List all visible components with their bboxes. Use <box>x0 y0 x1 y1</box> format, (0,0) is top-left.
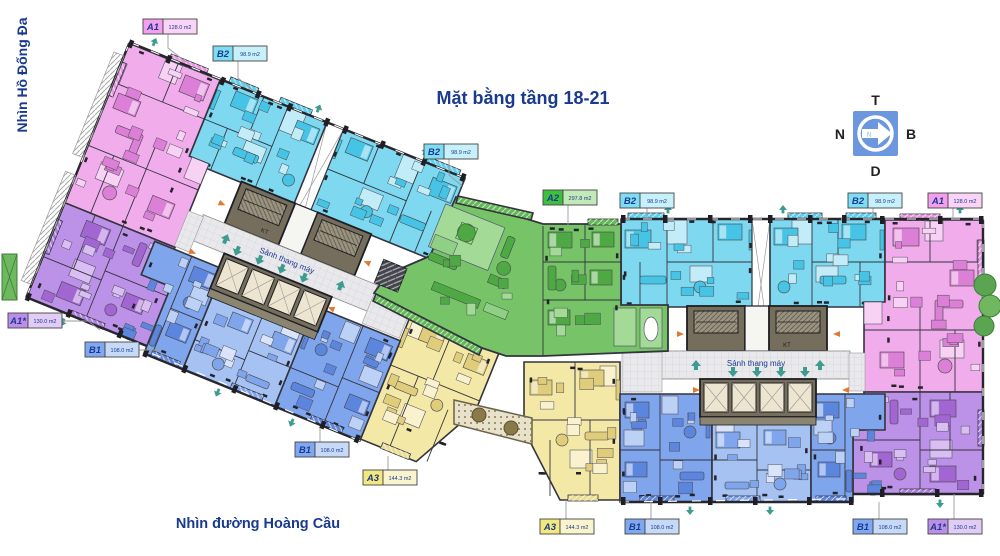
svg-text:A2: A2 <box>546 193 560 204</box>
svg-text:B2: B2 <box>428 147 441 158</box>
svg-text:98.9 m2: 98.9 m2 <box>875 199 895 205</box>
svg-text:KT: KT <box>783 343 791 349</box>
svg-text:A1: A1 <box>931 196 944 207</box>
svg-text:108.0 m2: 108.0 m2 <box>111 348 134 354</box>
svg-text:98.9 m2: 98.9 m2 <box>240 52 260 58</box>
svg-text:98.9 m2: 98.9 m2 <box>647 199 667 205</box>
svg-text:B2: B2 <box>217 49 230 60</box>
svg-text:A3: A3 <box>543 522 557 533</box>
svg-text:Nhìn đường Hoàng Cầu: Nhìn đường Hoàng Cầu <box>176 516 340 532</box>
svg-text:A1: A1 <box>146 22 159 33</box>
svg-text:130.0 m2: 130.0 m2 <box>34 319 57 325</box>
svg-text:B1: B1 <box>857 522 869 533</box>
svg-text:144.3 m2: 144.3 m2 <box>389 476 412 482</box>
svg-text:B: B <box>906 126 916 142</box>
svg-text:A1*: A1* <box>929 522 947 533</box>
svg-text:108.0 m2: 108.0 m2 <box>321 448 344 454</box>
svg-text:130.0 m2: 130.0 m2 <box>954 525 977 531</box>
svg-text:108.0 m2: 108.0 m2 <box>879 525 902 531</box>
svg-text:B1: B1 <box>629 522 641 533</box>
svg-text:N: N <box>866 132 871 139</box>
svg-text:A3: A3 <box>366 473 380 484</box>
svg-text:128.0 m2: 128.0 m2 <box>169 25 192 31</box>
svg-text:108.0 m2: 108.0 m2 <box>651 525 674 531</box>
svg-text:B1: B1 <box>89 345 101 356</box>
svg-text:98.9 m2: 98.9 m2 <box>451 150 471 156</box>
svg-text:Mặt bằng tầng 18-21: Mặt bằng tầng 18-21 <box>436 87 609 108</box>
svg-text:T: T <box>871 92 880 108</box>
svg-text:N: N <box>835 126 845 142</box>
svg-text:B1: B1 <box>299 445 311 456</box>
svg-text:128.0 m2: 128.0 m2 <box>954 199 977 205</box>
svg-text:Nhìn Hồ Đống Đa: Nhìn Hồ Đống Đa <box>14 17 30 132</box>
svg-text:A1*: A1* <box>9 316 27 327</box>
svg-text:D: D <box>870 163 880 179</box>
svg-text:B2: B2 <box>624 196 637 207</box>
svg-text:Sảnh thang máy: Sảnh thang máy <box>727 359 785 368</box>
svg-text:144.3 m2: 144.3 m2 <box>566 525 589 531</box>
svg-text:297.8 m2: 297.8 m2 <box>569 196 592 202</box>
svg-text:B2: B2 <box>852 196 865 207</box>
